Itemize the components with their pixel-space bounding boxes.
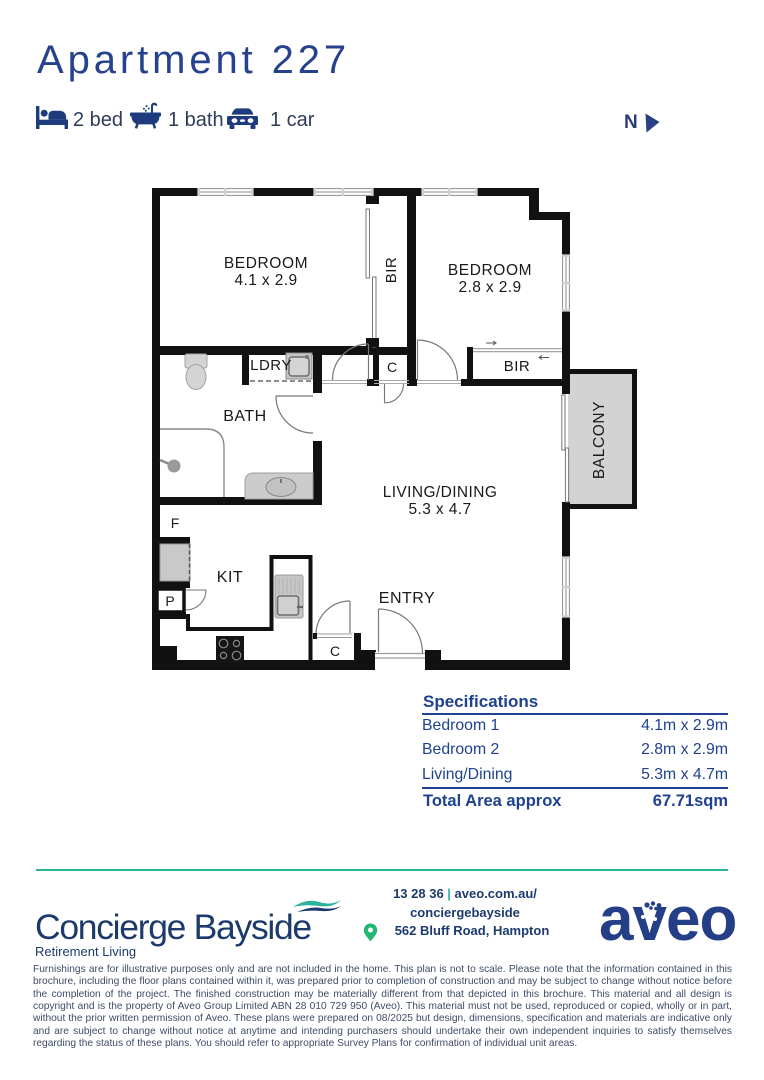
svg-text:ENTRY: ENTRY	[379, 590, 435, 607]
svg-text:BIR: BIR	[504, 358, 531, 375]
svg-text:P: P	[165, 593, 174, 609]
svg-text:4.1 x 2.9: 4.1 x 2.9	[234, 272, 297, 289]
svg-text:LDRY: LDRY	[250, 357, 292, 374]
svg-text:BATH: BATH	[223, 408, 266, 425]
svg-text:BIR: BIR	[383, 257, 400, 284]
svg-text:KIT: KIT	[217, 569, 243, 586]
svg-text:LIVING/DINING: LIVING/DINING	[383, 484, 498, 501]
svg-text:BALCONY: BALCONY	[591, 401, 608, 479]
svg-text:BEDROOM: BEDROOM	[224, 255, 308, 272]
svg-text:5.3 x 4.7: 5.3 x 4.7	[408, 501, 471, 518]
svg-text:2.8 x 2.9: 2.8 x 2.9	[458, 279, 521, 296]
svg-text:C: C	[330, 643, 340, 659]
svg-text:F: F	[171, 515, 180, 531]
svg-text:C: C	[387, 359, 397, 375]
svg-text:BEDROOM: BEDROOM	[448, 262, 532, 279]
